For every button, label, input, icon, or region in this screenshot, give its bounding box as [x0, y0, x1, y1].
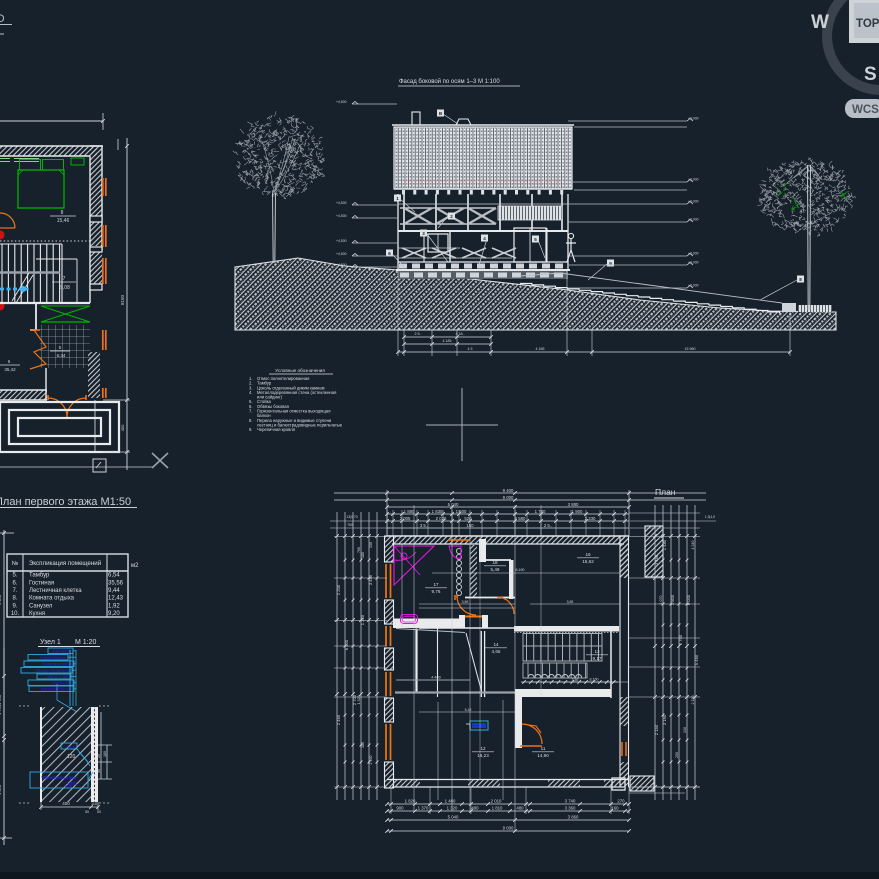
svg-text:2 025: 2 025 [436, 516, 447, 521]
svg-text:3 280: 3 280 [0, 594, 2, 605]
svg-text:Лестничная клетка: Лестничная клетка [29, 588, 82, 594]
svg-text:4 5: 4 5 [468, 347, 473, 351]
svg-text:8,1б0: 8,1б0 [515, 568, 524, 572]
svg-text:м2: м2 [131, 563, 139, 569]
svg-text:5 460: 5 460 [694, 654, 699, 665]
svg-text:11: 11 [541, 746, 546, 751]
svg-text:6.: 6. [12, 580, 17, 586]
svg-text:760: 760 [347, 523, 353, 527]
svg-text:8.: 8. [249, 418, 253, 423]
svg-text:+3,000: +3,000 [688, 284, 699, 288]
svg-text:1 480: 1 480 [662, 539, 667, 550]
svg-text:S: S [864, 64, 877, 85]
svg-text:1 880: 1 880 [404, 509, 415, 514]
svg-text:2 150: 2 150 [654, 724, 659, 735]
svg-text:*Термоутеплитель: *Термоутеплитель [34, 668, 71, 673]
svg-text:Экспликация помещений: Экспликация помещений [29, 560, 102, 567]
svg-text:8,1б0: 8,1б0 [589, 678, 598, 682]
svg-text:130: 130 [369, 542, 373, 548]
svg-text:1 900: 1 900 [572, 509, 583, 514]
svg-text:Армирование: Армирование [40, 655, 67, 660]
svg-text:12,43: 12,43 [108, 596, 124, 602]
svg-text:4 185: 4 185 [536, 347, 545, 351]
svg-text:7: 7 [63, 276, 66, 282]
svg-text:+4,500: +4,500 [336, 100, 347, 104]
svg-text:2 460: 2 460 [336, 714, 341, 725]
svg-text:4 185: 4 185 [443, 339, 452, 343]
svg-text:5,49: 5,49 [491, 567, 500, 572]
svg-text:35,56: 35,56 [108, 580, 124, 586]
svg-text:9 000: 9 000 [503, 495, 514, 500]
svg-text:130: 130 [683, 727, 687, 733]
svg-text:9,44: 9,44 [108, 588, 120, 594]
svg-text:Гидроизоляция: Гидроизоляция [42, 661, 72, 666]
svg-text:3,5б: 3,5б [462, 600, 469, 604]
svg-text:+3,000: +3,000 [688, 261, 699, 265]
svg-text:9,08: 9,08 [60, 285, 70, 291]
svg-text:слой ЦПС: слой ЦПС [52, 680, 72, 685]
svg-text:3 860: 3 860 [568, 815, 579, 820]
svg-text:15,62: 15,62 [582, 559, 594, 564]
svg-text:1 820: 1 820 [405, 799, 416, 804]
svg-text:17: 17 [433, 582, 439, 587]
svg-text:№: № [12, 560, 18, 567]
svg-text:босв: босв [67, 745, 75, 749]
svg-text:План: План [655, 487, 676, 497]
svg-text:+3,000: +3,000 [688, 252, 699, 256]
svg-text:14,90: 14,90 [537, 753, 549, 758]
svg-text:+4,500: +4,500 [336, 263, 347, 267]
svg-text:9.: 9. [249, 427, 253, 432]
svg-text:270: 270 [617, 799, 625, 804]
svg-text:Гостиная: Гостиная [29, 580, 54, 586]
svg-text:3 460: 3 460 [368, 574, 373, 585]
svg-text:+3,000: +3,000 [688, 117, 699, 121]
svg-text:13: 13 [594, 649, 600, 654]
svg-text:6 000: 6 000 [686, 594, 691, 605]
svg-text:плита стяж.: плита стяж. [46, 674, 69, 679]
svg-text:150: 150 [466, 523, 474, 528]
svg-text:3 460: 3 460 [654, 554, 659, 565]
svg-text:+4,500: +4,500 [336, 239, 347, 243]
svg-text:+4,500: +4,500 [336, 214, 347, 218]
svg-text:Изоляция: Изоляция [52, 648, 71, 653]
svg-text:4 480: 4 480 [431, 676, 441, 680]
svg-text:WCS: WCS [852, 104, 879, 116]
svg-text:3,5б: 3,5б [572, 678, 579, 682]
svg-text:Условные обозначения: Условные обозначения [275, 368, 325, 373]
svg-text:180: 180 [361, 552, 365, 558]
svg-text:3 5..: 3 5.. [420, 523, 428, 528]
svg-text:1 350: 1 350 [0, 784, 2, 795]
svg-text:6,34: 6,34 [57, 353, 66, 358]
svg-text:9.: 9. [12, 603, 17, 609]
svg-text:5.: 5. [12, 573, 17, 579]
svg-text:3,5б: 3,5б [567, 600, 574, 604]
svg-text:9,20: 9,20 [108, 611, 120, 617]
svg-text:O: O [0, 13, 5, 25]
svg-text:16,23: 16,23 [477, 753, 489, 758]
svg-text:180: 180 [361, 742, 365, 748]
svg-text:480: 480 [516, 806, 524, 811]
svg-text:12: 12 [480, 746, 486, 751]
svg-text:4,65: 4,65 [492, 649, 501, 654]
svg-text:10.: 10. [11, 611, 20, 617]
svg-text:2 5..: 2 5.. [544, 523, 552, 528]
svg-text:Тамбур: Тамбур [29, 573, 50, 579]
svg-text:М 1:20: М 1:20 [75, 639, 97, 646]
svg-text:Чередующ.слои: Чередующ.слои [41, 775, 76, 780]
svg-text:+3,000: +3,000 [688, 178, 699, 182]
svg-text:35,42: 35,42 [4, 367, 16, 372]
svg-text:6,54: 6,54 [108, 573, 120, 579]
svg-text:5 040: 5 040 [448, 815, 459, 820]
svg-text:400: 400 [62, 801, 70, 806]
svg-text:9,76: 9,76 [432, 589, 441, 594]
svg-text:118: 118 [91, 802, 97, 806]
svg-text:Черепичная кровля: Черепичная кровля [257, 427, 295, 432]
svg-text:+3,000: +3,000 [688, 218, 699, 222]
svg-text:50: 50 [97, 810, 101, 814]
svg-text:2 460: 2 460 [369, 756, 373, 765]
svg-text:1 480: 1 480 [445, 799, 456, 804]
svg-text:9 400: 9 400 [503, 488, 514, 493]
svg-text:8: 8 [61, 210, 64, 216]
svg-text:1 600: 1 600 [456, 509, 467, 514]
svg-text:План первого этажа М1:50: План первого этажа М1:50 [0, 496, 131, 508]
svg-text:+4,500: +4,500 [336, 201, 347, 205]
svg-text:+3,000: +3,000 [688, 200, 699, 204]
svg-text:1 780: 1 780 [535, 509, 546, 514]
svg-text:8.: 8. [12, 596, 17, 602]
svg-text:6 000: 6 000 [344, 639, 349, 650]
svg-text:250: 250 [675, 752, 679, 758]
svg-text:14: 14 [493, 642, 499, 647]
svg-text:15,46: 15,46 [57, 218, 70, 224]
svg-text:ЦПС: ЦПС [67, 781, 77, 786]
svg-text:Фасад боковой по осям 1–3 М 1: Фасад боковой по осям 1–3 М 1:100 [399, 78, 500, 85]
svg-text:Санузел: Санузел [29, 603, 53, 609]
svg-text:15 960: 15 960 [685, 347, 696, 351]
svg-text:1 070: 1 070 [659, 596, 663, 605]
svg-text:9,17: 9,17 [593, 656, 602, 661]
svg-text:+4,500: +4,500 [336, 252, 347, 256]
svg-text:1 310: 1 310 [691, 541, 695, 550]
svg-text:Узел 1: Узел 1 [40, 639, 61, 646]
svg-text:9 000: 9 000 [503, 826, 514, 831]
svg-text:1 780: 1 780 [0, 694, 2, 705]
svg-text:180: 180 [103, 751, 107, 757]
svg-text:2 700: 2 700 [678, 634, 683, 645]
svg-text:16: 16 [585, 552, 591, 557]
svg-text:7.: 7. [12, 588, 17, 594]
svg-text:3 740: 3 740 [565, 799, 576, 804]
svg-text:Кухня: Кухня [29, 611, 45, 617]
svg-text:1 830: 1 830 [432, 509, 443, 514]
svg-text:900: 900 [396, 806, 404, 811]
svg-text:4.: 4. [249, 390, 253, 395]
svg-text:20: 20 [97, 754, 101, 758]
svg-text:120: 120 [67, 754, 76, 760]
svg-text:1,92: 1,92 [108, 603, 120, 609]
svg-text:8150: 8150 [120, 294, 125, 305]
svg-text:760: 760 [357, 547, 361, 553]
svg-text:W: W [811, 12, 829, 33]
svg-text:5,1б: 5,1б [465, 708, 472, 712]
svg-text:1 800: 1 800 [670, 594, 675, 605]
svg-text:2 200: 2 200 [336, 584, 341, 595]
svg-text:1 320: 1 320 [447, 806, 458, 811]
svg-text:2 010: 2 010 [491, 799, 502, 804]
svg-text:50: 50 [85, 810, 89, 814]
svg-text:1 370: 1 370 [418, 806, 429, 811]
svg-text:13|0,70: 13|0,70 [346, 515, 357, 519]
svg-text:3 360: 3 360 [565, 806, 576, 811]
svg-text:450: 450 [120, 424, 125, 431]
svg-text:90: 90 [97, 769, 101, 773]
svg-text:Комната отдыха: Комната отдыха [29, 596, 75, 602]
svg-text:2 5..: 2 5.. [415, 332, 422, 336]
svg-text:3 880: 3 880 [568, 502, 579, 507]
svg-text:18: 18 [492, 560, 498, 565]
svg-text:TOP: TOP [856, 18, 879, 30]
svg-text:7.: 7. [249, 409, 253, 414]
svg-text:2 005: 2 005 [400, 516, 411, 521]
svg-text:1,3|1,0: 1,3|1,0 [705, 515, 715, 519]
svg-text:1 810: 1 810 [492, 806, 503, 811]
